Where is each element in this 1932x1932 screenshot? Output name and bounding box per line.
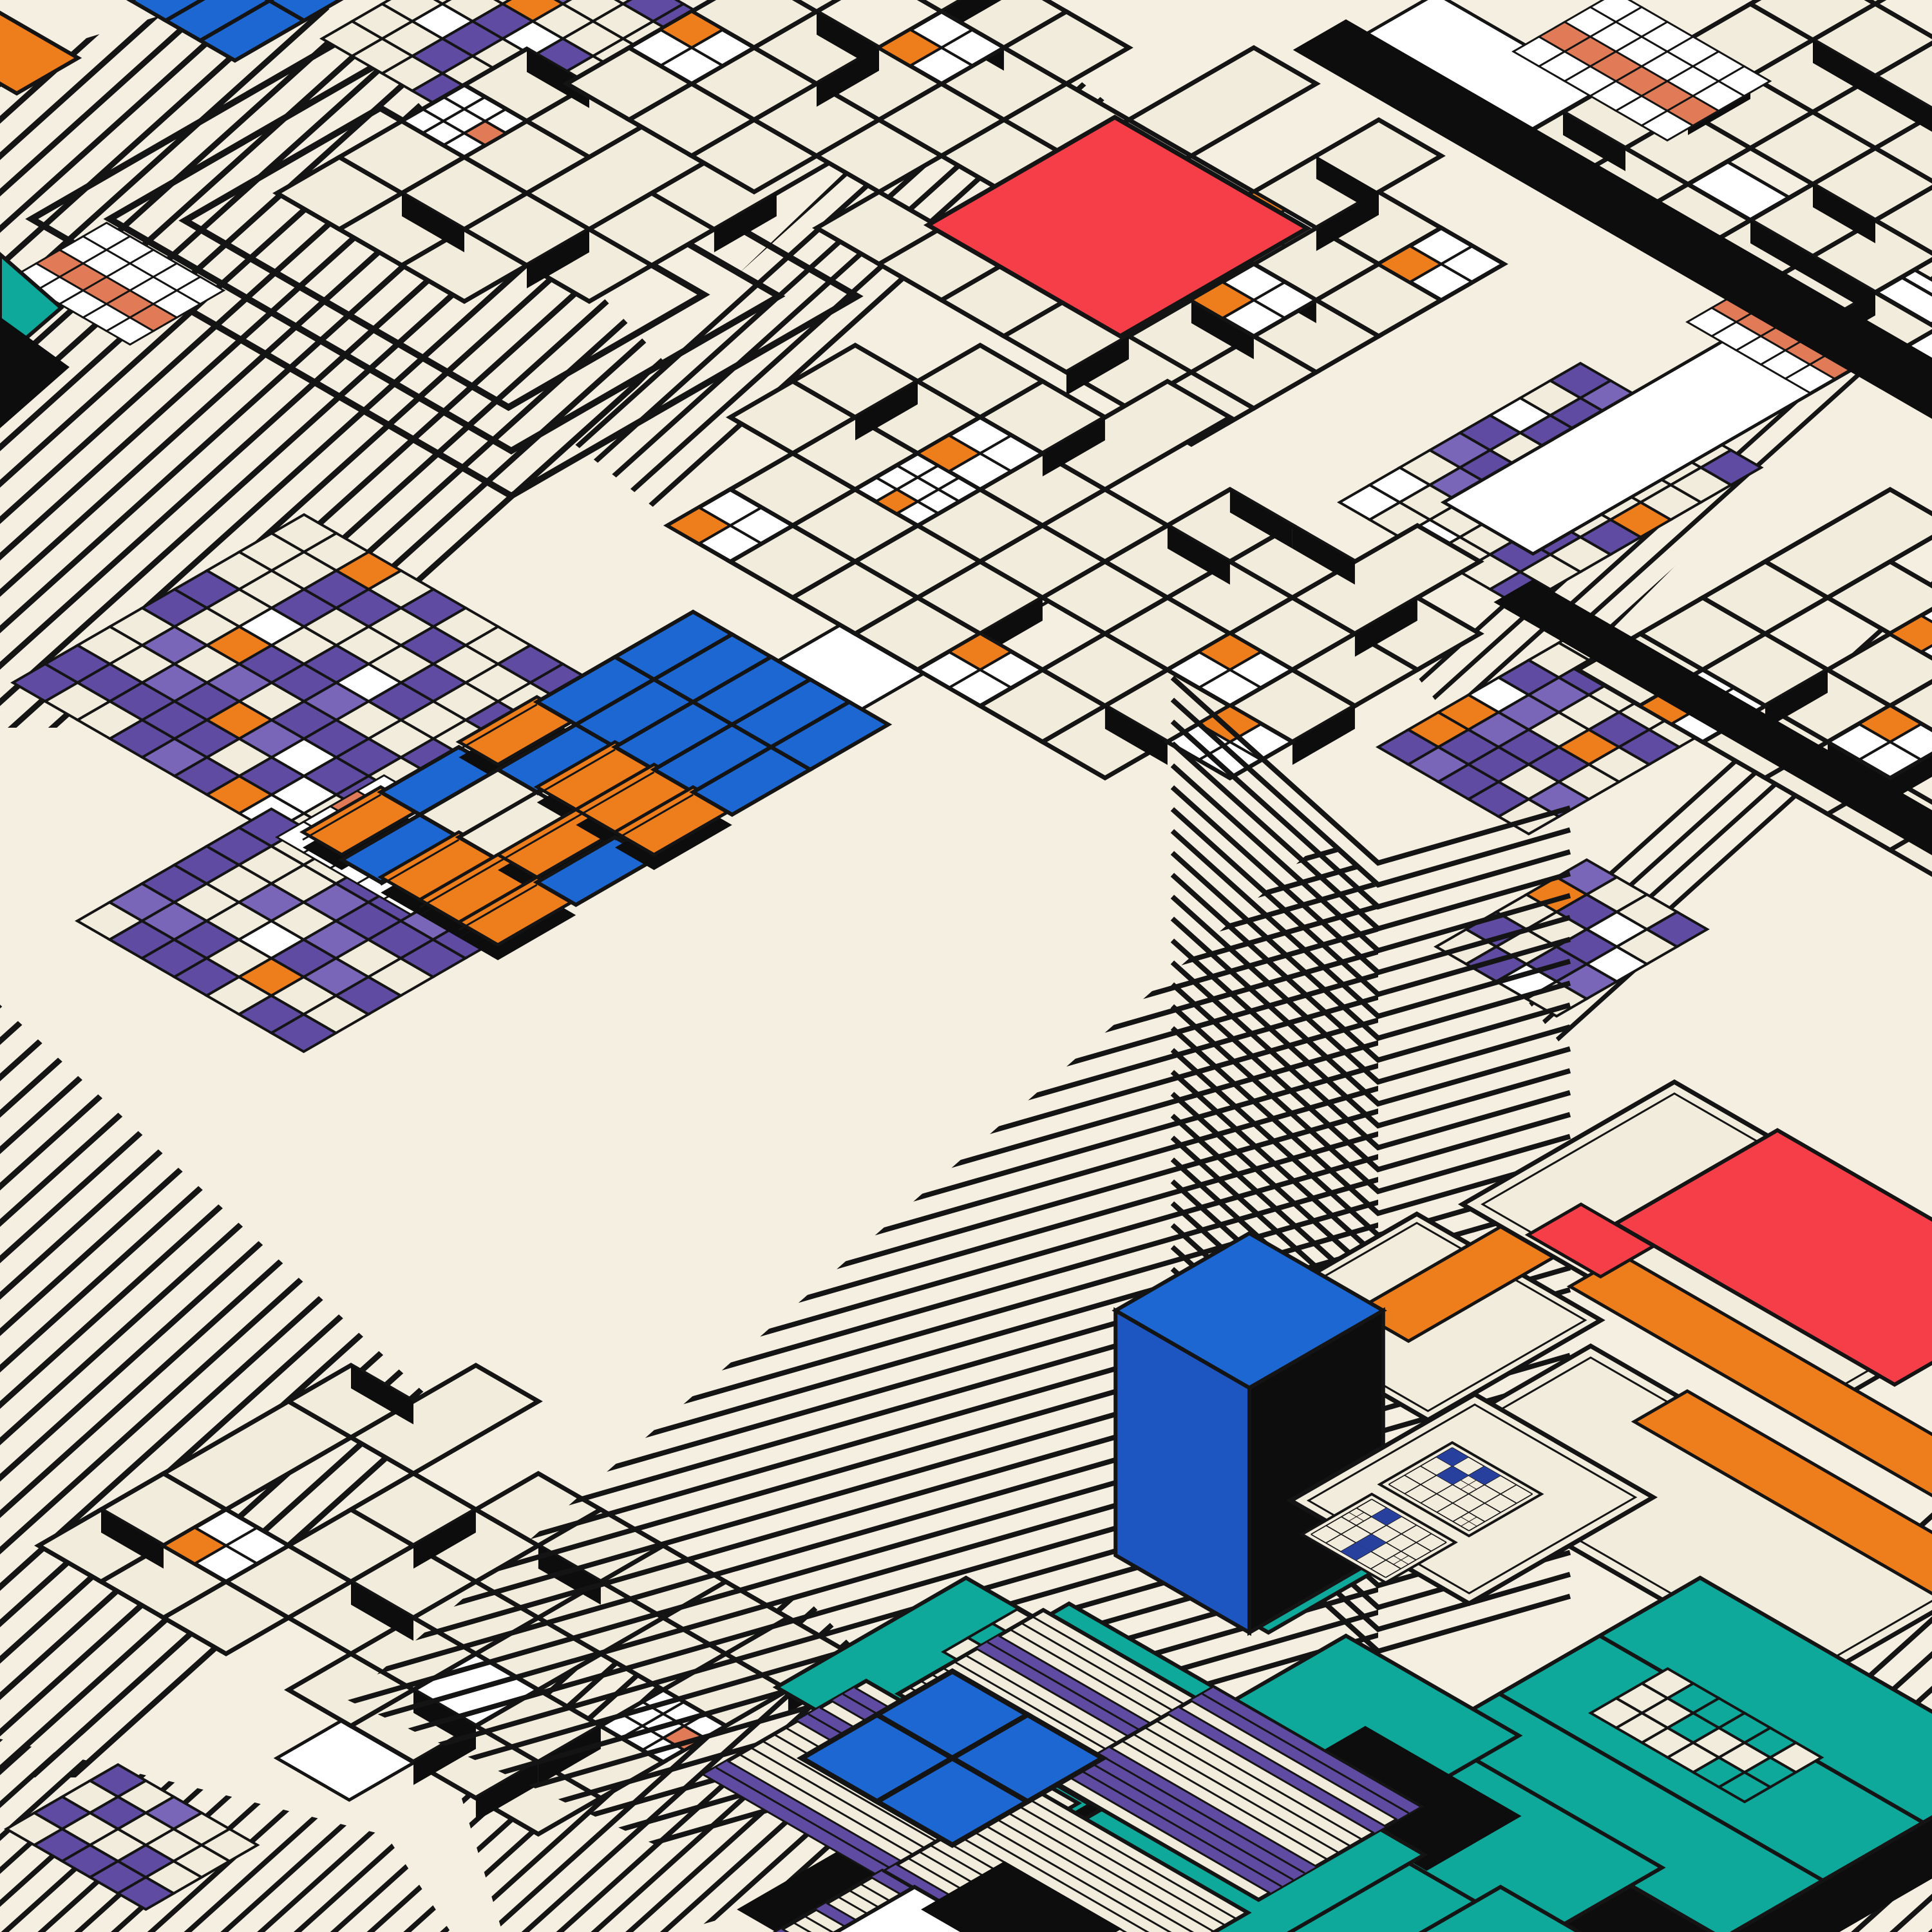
artwork-canvas bbox=[0, 0, 1932, 1932]
orange-tile-top-left bbox=[0, 13, 78, 93]
checker-bottom-left bbox=[6, 1765, 258, 1909]
blue-cuboid bbox=[1115, 1233, 1383, 1633]
generative-artwork bbox=[0, 0, 1932, 1932]
teal-wedge-shadow bbox=[0, 317, 70, 428]
